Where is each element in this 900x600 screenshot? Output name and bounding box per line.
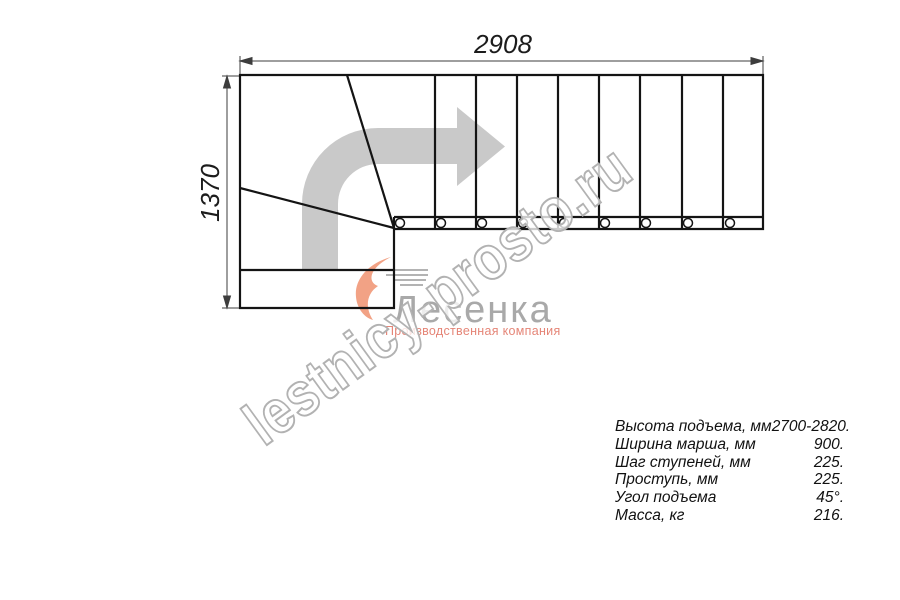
dim-arrow-up-icon	[224, 76, 231, 88]
spec-value: 2700-2820.	[772, 418, 850, 436]
spec-label: Ширина марша, мм	[615, 436, 756, 454]
dim-arrow-left-icon	[240, 58, 252, 65]
spec-row-mass: Масса, кг 216.	[615, 507, 844, 525]
spec-label: Шаг ступеней, мм	[615, 454, 751, 472]
dimension-height-label: 1370	[195, 164, 225, 222]
spec-row-flight-width: Ширина марша, мм 900.	[615, 436, 844, 454]
spec-row-rise-angle: Угол подъема 45°.	[615, 489, 844, 507]
dimension-height: 1370	[195, 76, 239, 308]
spec-row-tread-depth: Проступь, мм 225.	[615, 471, 844, 489]
spec-row-lift-height: Высота подъема, мм 2700-2820.	[615, 418, 844, 436]
spec-value: 216.	[814, 507, 844, 525]
spec-value: 225.	[814, 471, 844, 489]
dimension-width: 2908	[240, 29, 763, 74]
spec-label: Проступь, мм	[615, 471, 718, 489]
spec-value: 45°.	[816, 489, 844, 507]
spec-value: 900.	[814, 436, 844, 454]
spec-row-step-pitch: Шаг ступеней, мм 225.	[615, 454, 844, 472]
dim-arrow-right-icon	[751, 58, 763, 65]
watermark-text: lestnicy-prosto.ru	[232, 132, 645, 458]
dimension-width-label: 2908	[473, 29, 532, 59]
dim-arrow-down-icon	[224, 296, 231, 308]
spec-label: Угол подъема	[615, 489, 716, 507]
spec-value: 225.	[814, 454, 844, 472]
spec-label: Высота подъема, мм	[615, 418, 772, 436]
spec-label: Масса, кг	[615, 507, 684, 525]
spec-table: Высота подъема, мм 2700-2820. Ширина мар…	[615, 418, 844, 525]
staircase-drawing-page: Лесенка Производственная компания	[0, 0, 900, 600]
